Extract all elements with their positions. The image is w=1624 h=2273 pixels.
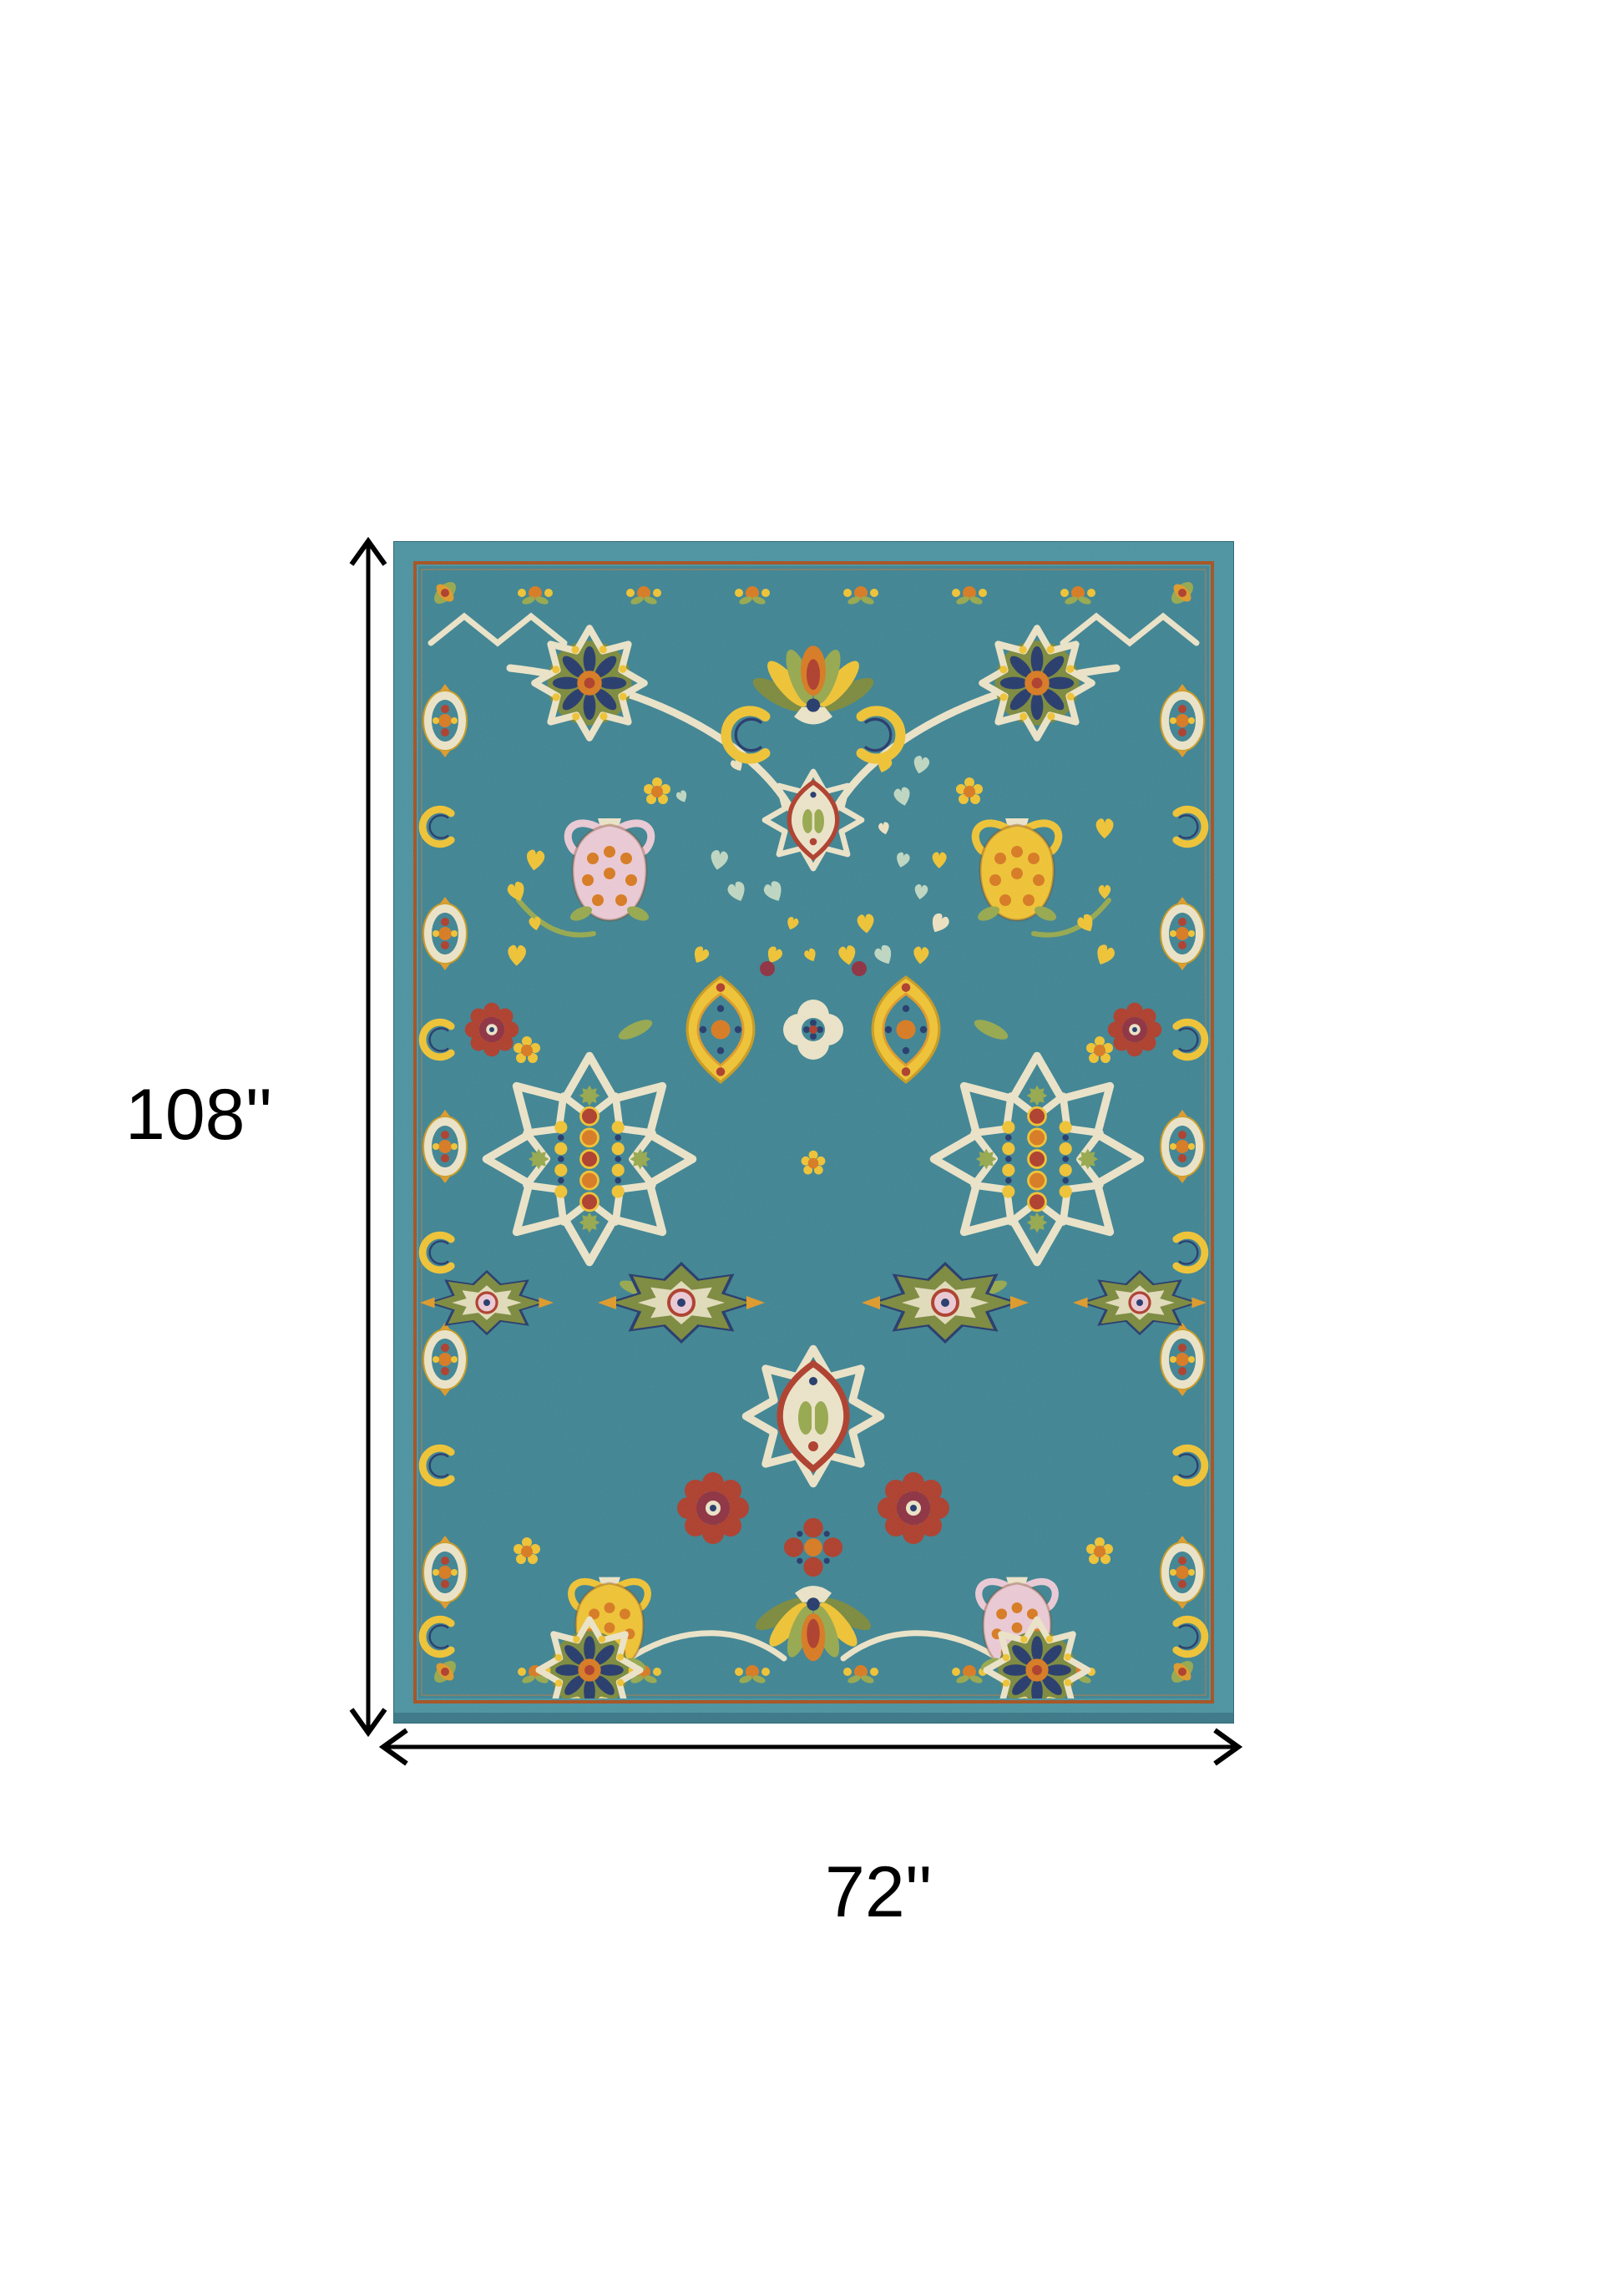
arrowhead-right-icon	[1215, 1730, 1238, 1764]
width-dimension-label: 72''	[825, 1856, 933, 1928]
arrowhead-up-icon	[352, 541, 385, 564]
height-dimension-label: 108''	[125, 1079, 272, 1151]
rug-artwork	[393, 541, 1234, 1724]
arrowhead-left-icon	[383, 1730, 407, 1764]
rug-image	[393, 541, 1234, 1724]
height-dimension-arrow	[352, 541, 385, 1733]
arrowhead-down-icon	[352, 1709, 385, 1733]
product-dimension-diagram: 108'' 72''	[0, 0, 1624, 2273]
width-dimension-arrow	[383, 1730, 1238, 1764]
rug-texture-noise	[393, 541, 1234, 1724]
